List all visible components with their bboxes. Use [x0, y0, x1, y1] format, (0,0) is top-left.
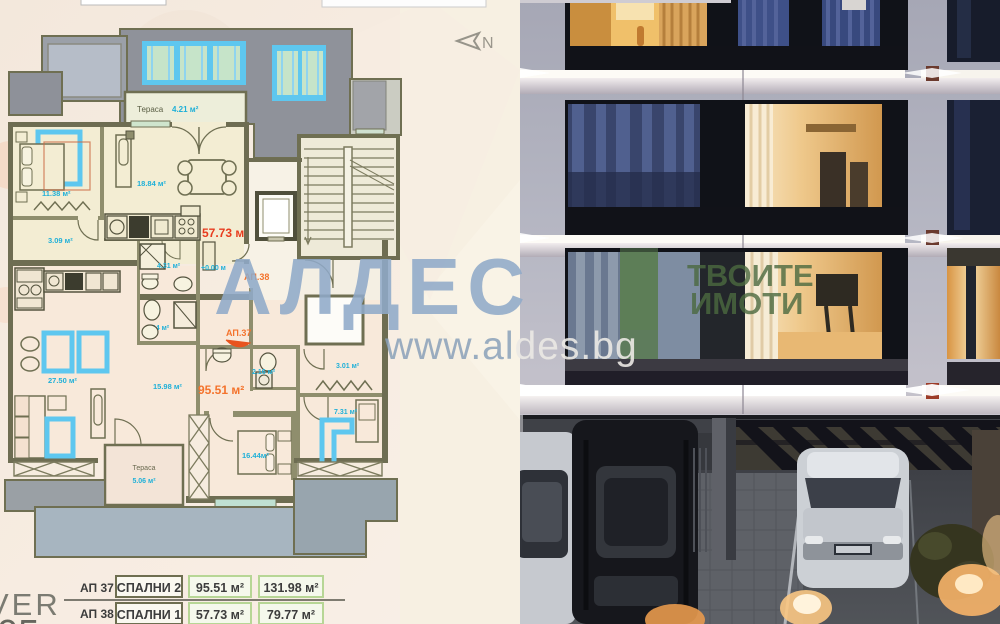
- svg-text:11.38 м²: 11.38 м²: [42, 189, 71, 198]
- svg-text:4.31 м²: 4.31 м²: [157, 263, 181, 270]
- svg-text:05: 05: [0, 613, 39, 624]
- svg-text:3.09 м²: 3.09 м²: [48, 236, 73, 245]
- svg-text:57.73 м: 57.73 м: [202, 226, 244, 240]
- svg-text:ИМОТИ: ИМОТИ: [690, 286, 803, 321]
- svg-text:3.01 м²: 3.01 м²: [336, 363, 360, 370]
- svg-text:2.16 м²: 2.16 м²: [252, 369, 276, 376]
- svg-text:АП 37: АП 37: [80, 581, 114, 595]
- svg-text:79.77 м²: 79.77 м²: [267, 608, 315, 622]
- svg-text:16.44м²: 16.44м²: [242, 451, 269, 460]
- svg-text:95.51 м²: 95.51 м²: [196, 581, 244, 595]
- svg-text:27.50 м²: 27.50 м²: [48, 376, 77, 385]
- svg-text:57.73 м²: 57.73 м²: [196, 608, 244, 622]
- svg-text:СПАЛНИ 2: СПАЛНИ 2: [117, 581, 181, 595]
- svg-text:СПАЛНИ 1: СПАЛНИ 1: [117, 608, 181, 622]
- svg-text:15.98 м²: 15.98 м²: [153, 382, 182, 391]
- svg-text:N: N: [482, 35, 494, 52]
- svg-text:Тераса: Тераса: [133, 465, 156, 472]
- svg-text:131.98 м²: 131.98 м²: [263, 581, 318, 595]
- svg-text:4.21 м²: 4.21 м²: [172, 105, 199, 114]
- svg-text:7.31 м²: 7.31 м²: [334, 409, 358, 416]
- svg-text:АП 38: АП 38: [80, 607, 114, 621]
- svg-text:18.84 м²: 18.84 м²: [137, 179, 166, 188]
- svg-text:5.06 м²: 5.06 м²: [132, 478, 156, 485]
- svg-text:Тераса: Тераса: [137, 105, 164, 114]
- svg-text:95.51 м²: 95.51 м²: [198, 383, 244, 397]
